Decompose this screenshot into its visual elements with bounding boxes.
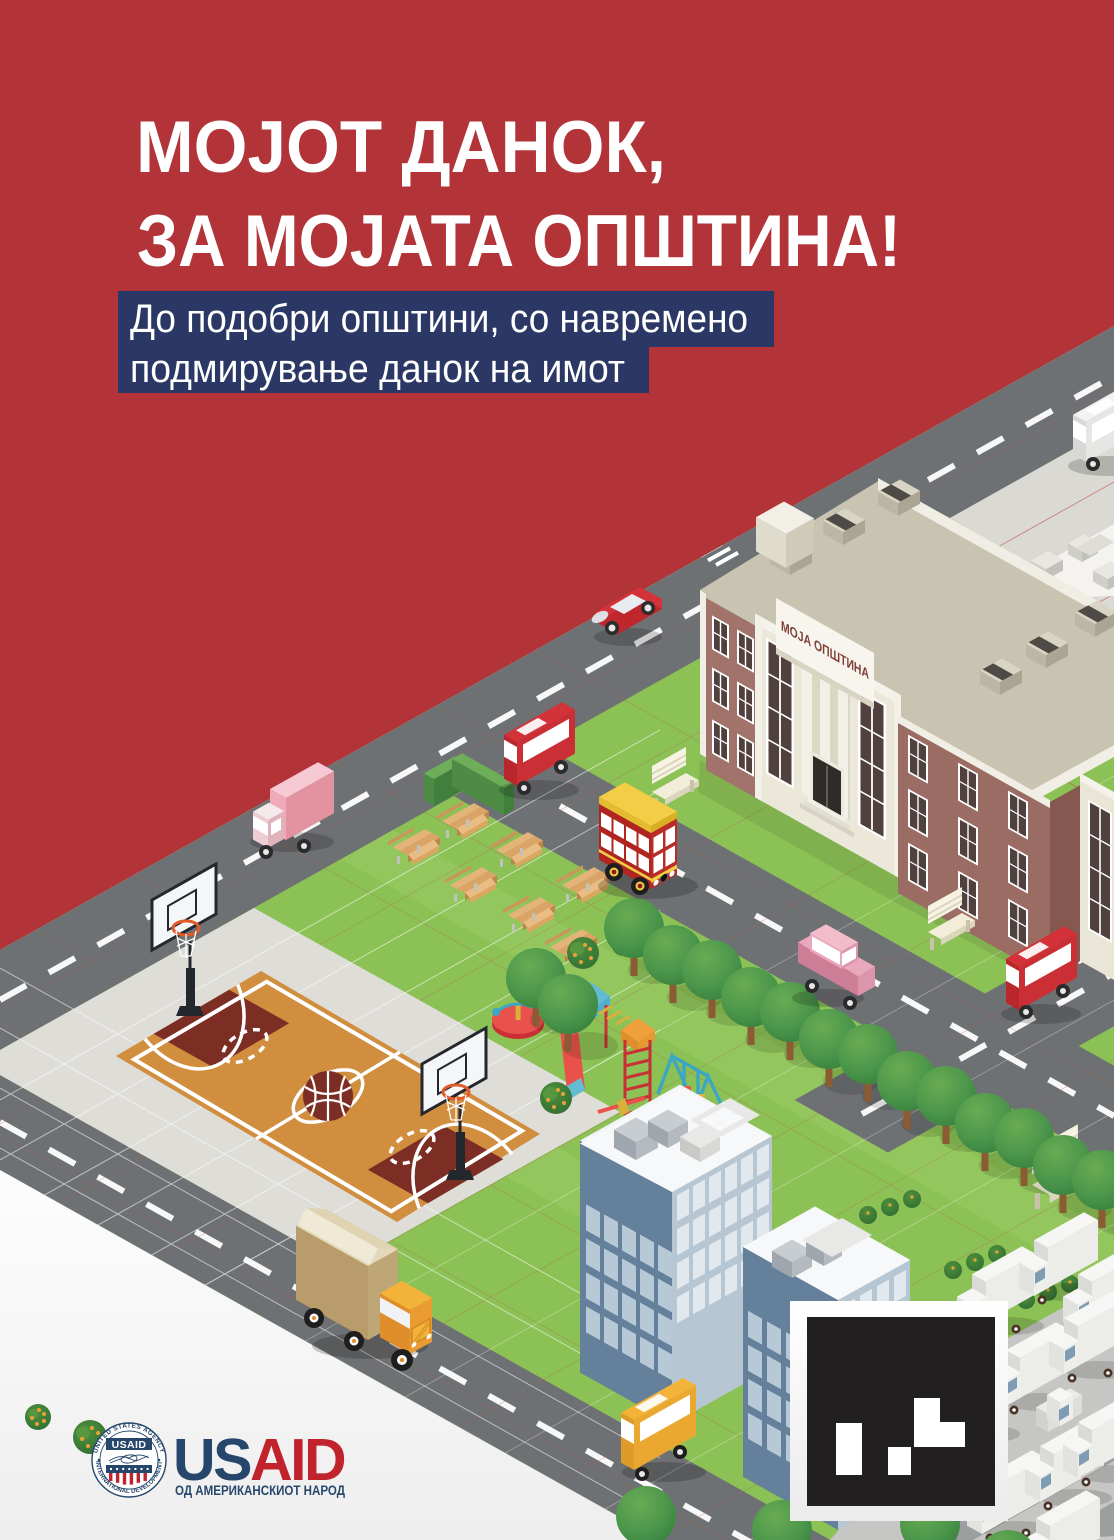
svg-text:До подобри општини, со навреме: До подобри општини, со навремено bbox=[130, 297, 748, 341]
svg-text:ОД АМЕРИКАНСКИОТ НАРОД: ОД АМЕРИКАНСКИОТ НАРОД bbox=[175, 1483, 345, 1498]
svg-text:USAID: USAID bbox=[112, 1439, 147, 1451]
svg-text:МОЈОТ ДАНОК,: МОЈОТ ДАНОК, bbox=[136, 107, 666, 188]
svg-text:ЗА МОЈАТА ОПШТИНА!: ЗА МОЈАТА ОПШТИНА! bbox=[137, 201, 901, 282]
svg-text:подмирување данок на имот: подмирување данок на имот bbox=[130, 347, 625, 391]
